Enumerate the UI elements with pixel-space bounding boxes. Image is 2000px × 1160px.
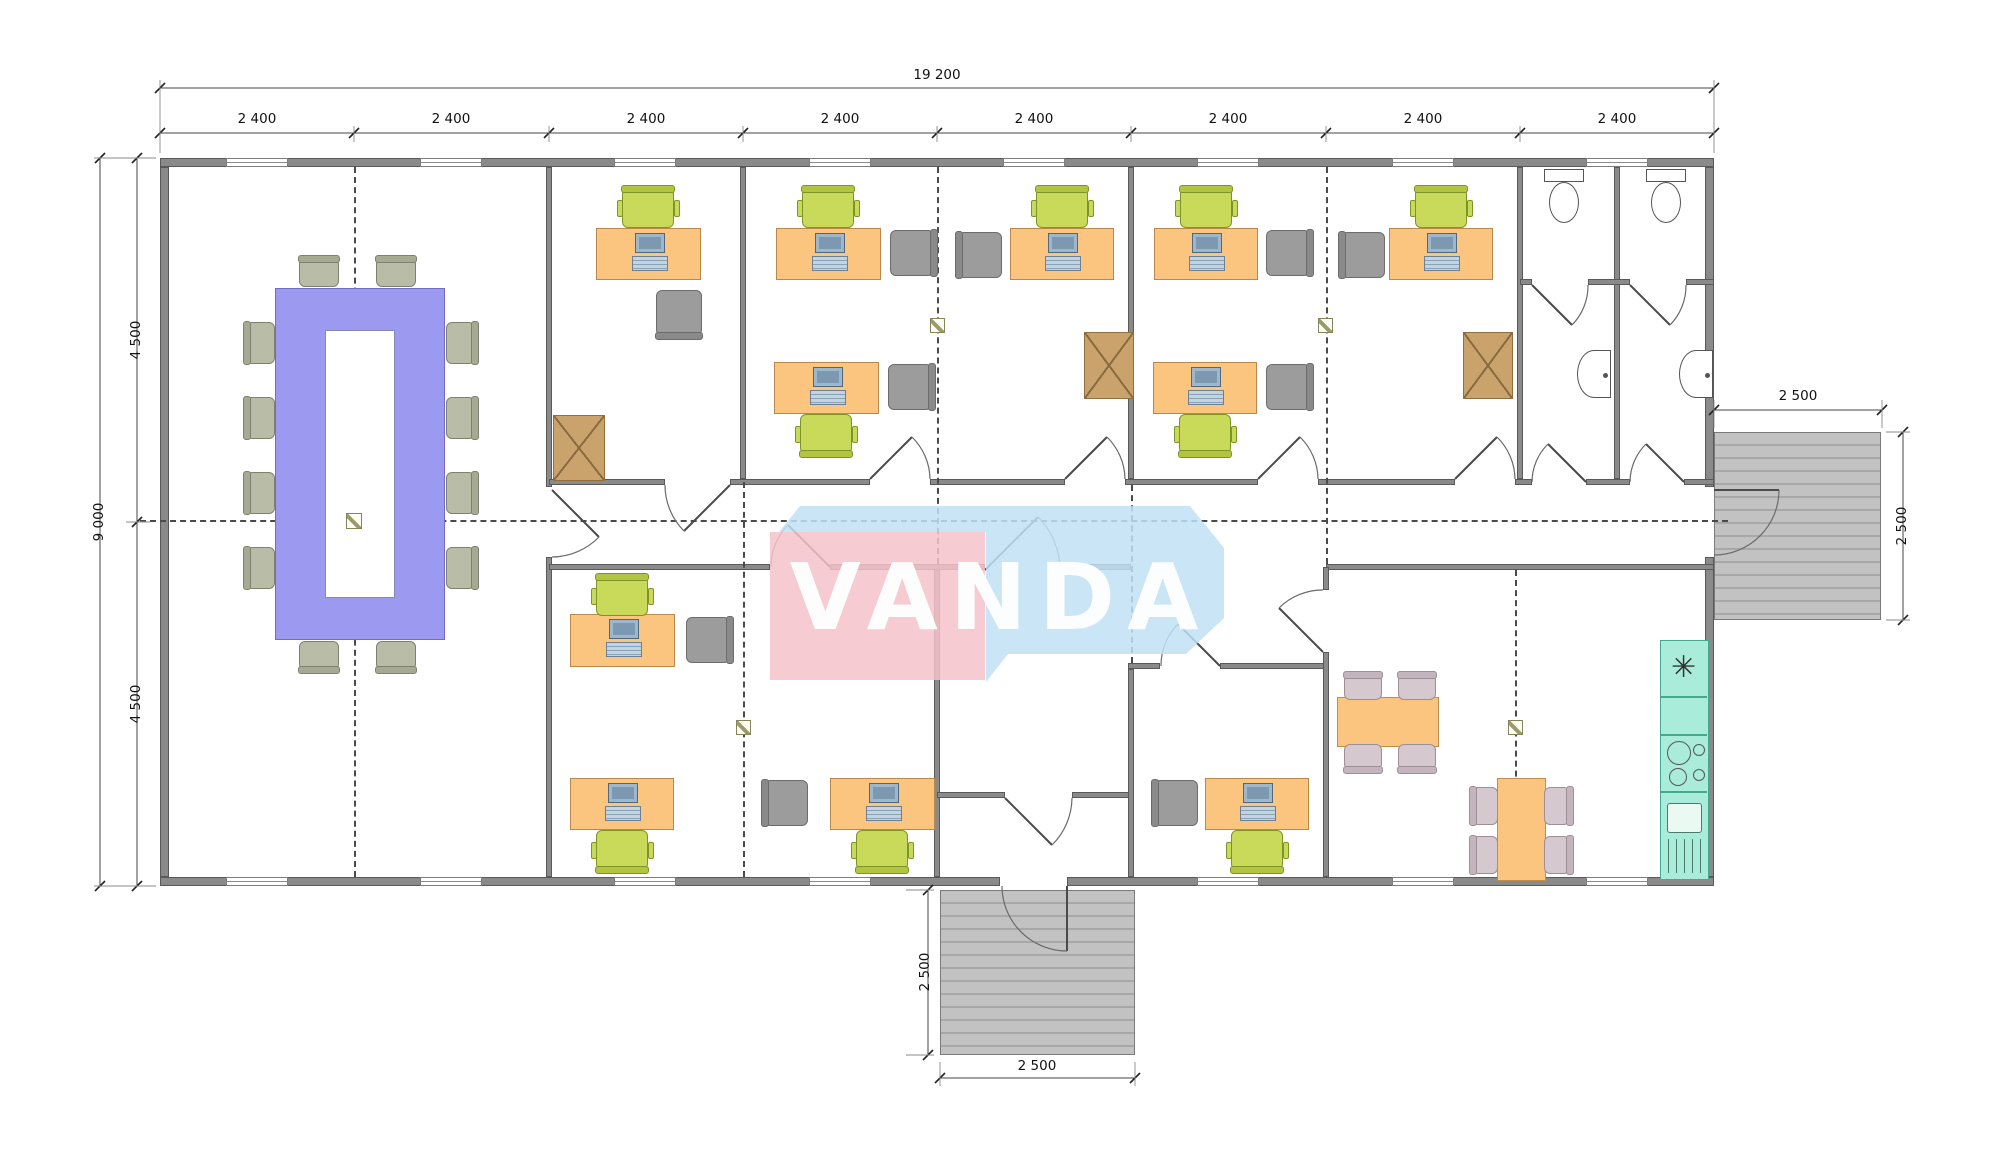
dim-depth-upper: 4 500: [128, 321, 144, 360]
dim-right-deck-depth: 2 500: [1894, 507, 1910, 546]
dim-bottom-deck-width: 2 500: [1018, 1058, 1057, 1074]
dim-bay-4: 2 400: [821, 111, 860, 127]
dim-bay-3: 2 400: [627, 111, 666, 127]
dim-bay-2: 2 400: [432, 111, 471, 127]
dim-total-depth: 9 000: [91, 503, 107, 542]
dim-bay-8: 2 400: [1598, 111, 1637, 127]
dim-total-width: 19 200: [913, 67, 960, 83]
dim-depth-lower: 4 500: [128, 685, 144, 724]
dim-bay-6: 2 400: [1209, 111, 1248, 127]
dim-bay-7: 2 400: [1404, 111, 1443, 127]
dim-right-deck-width: 2 500: [1779, 388, 1818, 404]
dim-bay-1: 2 400: [238, 111, 277, 127]
dim-bottom-deck-depth: 2 500: [917, 953, 933, 992]
dimension-labels-layer: 19 2002 4002 4002 4002 4002 4002 4002 40…: [0, 0, 2000, 1160]
dim-bay-5: 2 400: [1015, 111, 1054, 127]
floor-plan-page: ✳ 19 2002 4002 4002 4002 4002 4002 4002 …: [0, 0, 2000, 1160]
